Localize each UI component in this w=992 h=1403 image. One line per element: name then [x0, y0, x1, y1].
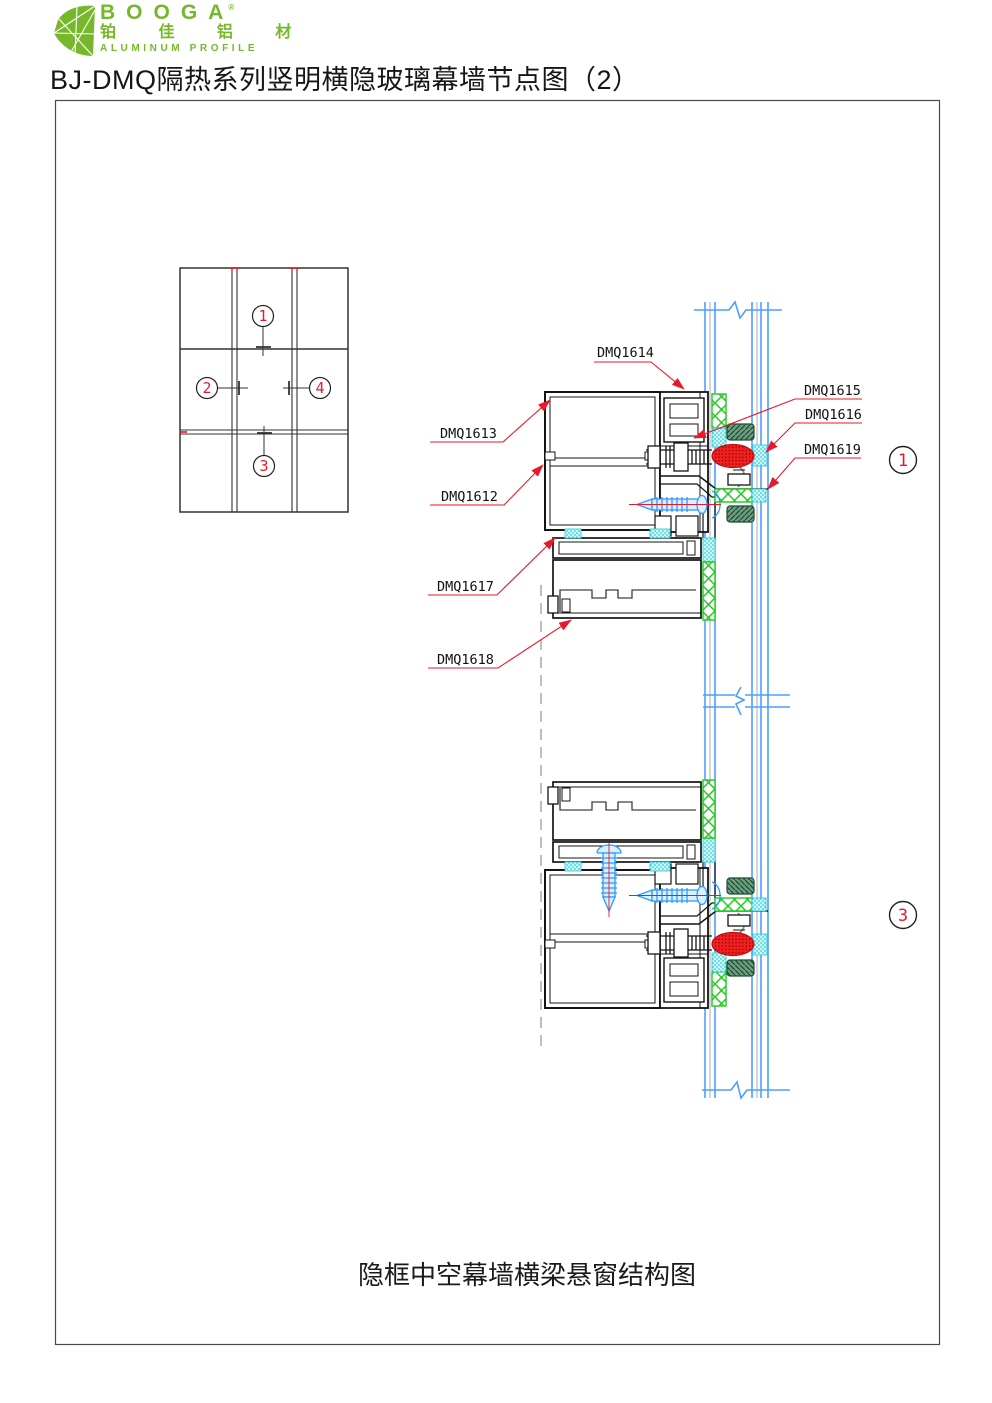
- detail-callout-1: 1: [890, 447, 917, 474]
- part-label-dmq1617: DMQ1617: [428, 538, 555, 595]
- drawing-caption: 隐框中空幕墙横梁悬窗结构图: [358, 1260, 696, 1290]
- svg-text:DMQ1617: DMQ1617: [437, 579, 494, 595]
- svg-text:DMQ1619: DMQ1619: [804, 442, 861, 458]
- part-label-dmq1612: DMQ1612: [430, 465, 543, 505]
- elevation-callout-2: 2: [197, 378, 249, 399]
- svg-text:DMQ1618: DMQ1618: [437, 652, 494, 668]
- drawing-canvas: 1 2 4 3: [0, 0, 992, 1403]
- svg-text:3: 3: [259, 457, 268, 475]
- glass-break-middle: [703, 687, 790, 715]
- part-label-dmq1619: DMQ1619: [768, 442, 861, 489]
- svg-text:DMQ1614: DMQ1614: [597, 345, 654, 361]
- svg-text:DMQ1612: DMQ1612: [441, 489, 498, 505]
- drawing-page: BOOGA ® 铂 佳 铝 材 ALUMINUM PROFILE BJ-DMQ隔…: [0, 0, 992, 1403]
- elevation-callout-4: 4: [283, 378, 331, 399]
- svg-text:DMQ1615: DMQ1615: [804, 383, 861, 399]
- detail-node-1-assembly: [545, 392, 768, 620]
- svg-text:DMQ1616: DMQ1616: [805, 407, 862, 423]
- svg-text:DMQ1613: DMQ1613: [440, 426, 497, 442]
- part-label-dmq1618: DMQ1618: [428, 620, 571, 668]
- detail-callout-3: 3: [890, 902, 917, 929]
- svg-text:1: 1: [258, 307, 267, 325]
- svg-text:4: 4: [315, 379, 324, 397]
- rubber-gasket-ellipse: [712, 445, 754, 468]
- sheet-border: [56, 101, 940, 1345]
- elevation-key-plan: 1 2 4 3: [180, 268, 348, 512]
- svg-text:3: 3: [898, 906, 908, 926]
- part-label-dmq1614: DMQ1614: [594, 345, 684, 389]
- part-label-dmq1613: DMQ1613: [430, 400, 550, 442]
- detail-node-3-assembly: [545, 780, 768, 1008]
- svg-text:1: 1: [898, 451, 908, 471]
- svg-text:2: 2: [202, 379, 211, 397]
